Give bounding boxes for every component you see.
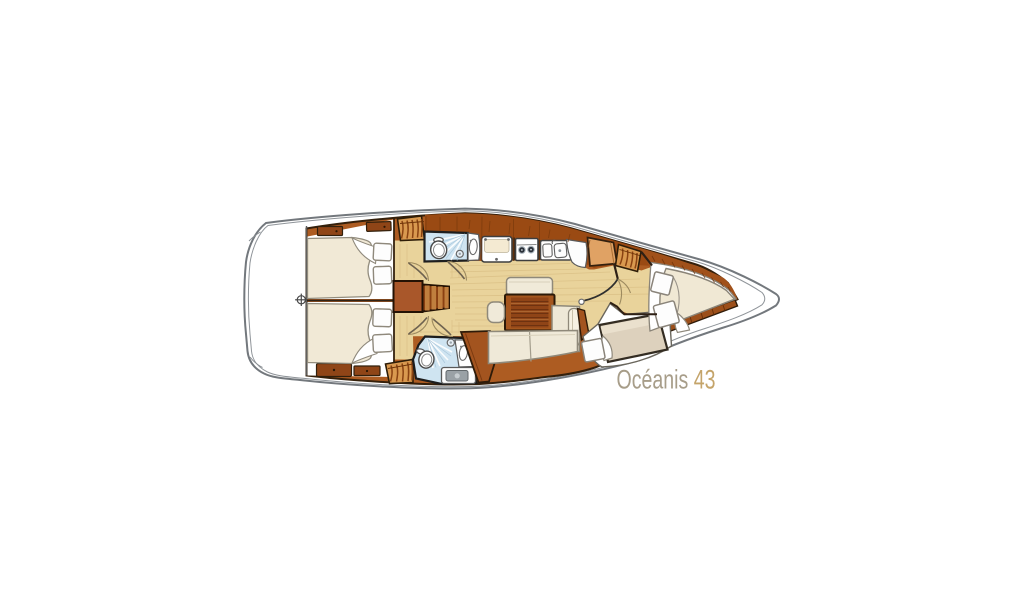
svg-text:Océanis 43: Océanis 43: [617, 365, 716, 395]
